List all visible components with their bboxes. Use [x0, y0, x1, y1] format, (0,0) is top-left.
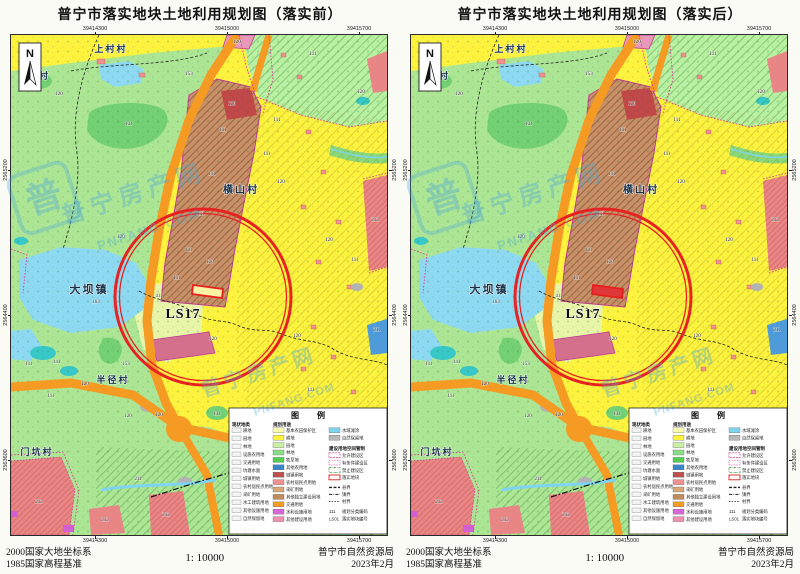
map-unit: 394143003941500039415700 394143003941500… — [400, 26, 800, 544]
legend-swatch-control — [329, 460, 340, 465]
agency-block: 普宁市自然资源局 2023年2月 — [718, 547, 794, 571]
landuse-code: 120 — [633, 40, 641, 45]
legend-label: 其他设施用地 — [243, 507, 269, 514]
legend-label: 耕地 — [643, 427, 652, 434]
landuse-code: 111 — [309, 52, 317, 57]
legend-swatch-planned — [673, 487, 684, 492]
grid-left-strip: 256520025644002563600 — [400, 35, 411, 535]
landuse-code: 211 — [134, 477, 142, 482]
legend-label: 其他建设用地 — [286, 516, 312, 523]
legend-swatch-current — [632, 444, 641, 449]
legend-label: 耕地 — [686, 434, 695, 441]
scale-label: 1: 10000 — [92, 547, 318, 571]
landuse-code: 120 — [628, 102, 636, 107]
landuse-code: 120 — [124, 414, 132, 419]
legend-label: 水利设施用地 — [286, 508, 312, 515]
legend-label: 设施农用地 — [243, 451, 265, 458]
place-label: 半径村 — [496, 374, 529, 385]
place-label: 横山村 — [623, 183, 659, 196]
hydraulic-patch — [63, 525, 74, 532]
legend-swatch-planned — [273, 480, 284, 485]
landuse-code: 212 — [162, 513, 170, 518]
landuse-code: 120 — [206, 260, 214, 265]
road-junction — [566, 416, 592, 442]
legend-label: 落实地块 — [342, 474, 360, 481]
grid-y-label: 2565200 — [392, 159, 398, 180]
map-canvas: 1111111111111111111111111111111111111111… — [11, 35, 387, 535]
legend-swatch-planned — [673, 465, 684, 470]
legend-label: 交通用地 — [686, 501, 704, 508]
legend-swatch-planned — [273, 457, 284, 462]
grid-y-label: 2564400 — [792, 304, 798, 325]
landuse-code: 111 — [585, 248, 593, 253]
legend-swatch-planned — [673, 509, 684, 514]
landuse-code: 153 — [185, 72, 193, 77]
legend-label: 禁止建设区 — [742, 467, 764, 474]
landuse-code: 131 — [525, 122, 533, 127]
landuse-code: 111 — [447, 394, 455, 399]
map-date: 2023年2月 — [718, 559, 794, 571]
landuse-code: 120 — [677, 180, 685, 185]
legend-code: LS01 — [329, 517, 340, 522]
grid-y-label: 2563600 — [792, 449, 798, 470]
landuse-code: 120 — [481, 382, 489, 387]
landuse-code: 111 — [351, 258, 359, 263]
landuse-code: 120 — [357, 90, 365, 95]
landuse-code: 111 — [25, 362, 33, 367]
landuse-code: 212 — [501, 518, 509, 523]
legend-swatch — [729, 435, 740, 440]
legend-swatch-current — [632, 516, 641, 521]
landuse-code: 120 — [228, 102, 236, 107]
legend-label: 其他设施用地 — [643, 507, 669, 514]
legend-swatch-current — [632, 508, 641, 513]
legend-swatch-planned — [673, 435, 684, 440]
legend-swatch-current — [232, 484, 241, 489]
legend-swatch-current — [632, 452, 641, 457]
legend-swatch-current — [232, 460, 241, 465]
legend-swatch-planned — [273, 517, 284, 522]
place-label: 门坑村 — [420, 446, 453, 457]
grid-top-strip: 394143003941500039415700 — [0, 26, 400, 35]
legend-label: 禁止建设区 — [342, 467, 364, 474]
place-label: 上村村 — [94, 43, 127, 54]
landuse-code: 111 — [608, 172, 616, 177]
legend-label: 水域滩涂 — [742, 427, 760, 434]
landuse-code: 111 — [709, 52, 717, 57]
landuse-code: 120 — [725, 238, 733, 243]
landuse-code: 111 — [263, 152, 271, 157]
legend-current-header: 现状地类 — [232, 421, 250, 428]
legend-label: 采矿用地 — [643, 491, 661, 498]
legend-swatch-planned — [673, 428, 684, 433]
legend-swatch-current — [232, 444, 241, 449]
legend-swatch-current — [232, 508, 241, 513]
legend-current-header: 现状地类 — [632, 421, 650, 428]
landuse-code: 120 — [693, 334, 701, 339]
landuse-code: 212 — [435, 500, 443, 505]
map-unit: 394143003941500039415700 394143003941500… — [0, 26, 400, 544]
legend-label: 落实地块编号 — [742, 516, 768, 523]
legend-title: 图 例 — [291, 410, 333, 420]
hydraulic-patch — [411, 511, 418, 517]
map-footer: 2000国家大地坐标系 1985国家高程基准 1: 10000 普宁市自然资源局… — [0, 544, 400, 571]
north-arrow: N — [419, 43, 441, 91]
landuse-code: 111 — [219, 128, 227, 133]
landuse-code: 120 — [609, 337, 617, 342]
legend-swatch-current — [632, 500, 641, 505]
nature-reserve-patch — [751, 283, 763, 291]
legend-swatch-planned — [273, 435, 284, 440]
legend-label: 允许建设区 — [742, 452, 764, 459]
map-footer: 2000国家大地坐标系 1985国家高程基准 1: 10000 普宁市自然资源局… — [400, 544, 800, 571]
legend-code: LS01 — [729, 517, 740, 522]
legend-label: 水利设施用地 — [686, 508, 712, 515]
legend-label: 村界 — [742, 498, 751, 505]
landuse-code: 120 — [117, 235, 125, 240]
legend-swatch-planned — [273, 428, 284, 433]
legend-swatch-planned — [673, 450, 684, 455]
legend-swatch-planned — [673, 517, 684, 522]
legend-label: 其他独立建设用地 — [286, 494, 321, 501]
legend-swatch-planned — [273, 450, 284, 455]
ls17-label: LS17 — [165, 307, 200, 322]
legend-label: 基本农田保护区 — [286, 427, 317, 434]
legend-label: 规划分类编码 — [342, 508, 368, 515]
landuse-code: 120 — [757, 90, 765, 95]
place-label: 门坑村 — [20, 446, 53, 457]
legend-swatch-current — [232, 492, 241, 497]
legend-label: 其他建设用地 — [686, 516, 712, 523]
legend-label: 林地 — [643, 443, 652, 450]
legend-swatch-control — [329, 453, 340, 458]
landuse-code: 153 — [585, 72, 593, 77]
legend-label: 耕地 — [243, 427, 252, 434]
legend-swatch-control — [729, 453, 740, 458]
legend-label: 耕地 — [286, 434, 295, 441]
legend-swatch-current — [632, 484, 641, 489]
legend-swatch-planned — [673, 457, 684, 462]
crs-block: 2000国家大地坐标系 1985国家高程基准 — [6, 547, 92, 571]
panel-before: 普宁市落实地块土地利用规划图（落实前） 39414300394150003941… — [0, 0, 400, 571]
legend-swatch-current — [632, 460, 641, 465]
road-junction — [166, 416, 192, 442]
landuse-code: 120 — [524, 414, 532, 419]
legend-swatch-planned — [673, 494, 684, 499]
landuse-code: 131 — [213, 412, 221, 417]
grid-y-label: 2564400 — [392, 304, 398, 325]
legend-label: 林地 — [686, 449, 695, 456]
place-label: 上村村 — [494, 43, 527, 54]
legend-label: 农村居民点用地 — [643, 483, 674, 490]
place-label: 大坝镇 — [470, 282, 509, 296]
north-label: N — [426, 48, 434, 60]
legend-swatch-current — [632, 476, 641, 481]
place-label: 横山村 — [223, 183, 259, 196]
legend-label: 坑塘水面 — [643, 467, 661, 474]
panel-after: 普宁市落实地块土地利用规划图（落实后） 39414300394150003941… — [400, 0, 800, 571]
legend-swatch-current — [232, 476, 241, 481]
legend-swatch-planned — [673, 480, 684, 485]
grid-right-strip: 256520025644002563600 — [789, 35, 800, 535]
legend-title: 图 例 — [691, 410, 733, 420]
landuse-code: 411 — [555, 294, 563, 299]
crs-line1: 2000国家大地坐标系 — [6, 547, 92, 559]
legend-label: 自然保留地 — [742, 434, 764, 441]
legend-label: 水域滩涂 — [342, 427, 360, 434]
grid-bottom-strip: 394143003941500039415700 — [0, 536, 400, 544]
grid-y-label: 2565200 — [792, 159, 798, 180]
landuse-code: 211 — [534, 477, 542, 482]
legend-label: 采矿用地 — [686, 486, 704, 493]
place-label: 半径村 — [96, 374, 129, 385]
map-title-before: 普宁市落实地块土地利用规划图（落实前） — [0, 0, 400, 26]
landuse-code: 120 — [455, 92, 463, 97]
landuse-code: 111 — [673, 118, 681, 123]
landuse-code: 111 — [307, 388, 315, 393]
map-date: 2023年2月 — [318, 559, 394, 571]
page: 普宁市落实地块土地利用规划图（落实前） 39414300394150003941… — [0, 0, 800, 571]
legend-swatch-planned — [273, 509, 284, 514]
legend-label: 水工建筑用地 — [643, 499, 669, 506]
grid-bottom-strip: 394143003941500039415700 — [400, 536, 800, 544]
agency-name: 普宁市自然资源局 — [318, 547, 394, 559]
landuse-code: 120 — [517, 235, 525, 240]
legend-label: 镇界 — [742, 491, 751, 498]
legend-swatch-current — [232, 500, 241, 505]
legend-label: 园地 — [243, 435, 252, 442]
landuse-code: 163 — [92, 300, 100, 305]
legend-code: 111 — [329, 509, 336, 514]
landuse-code: 212 — [35, 500, 43, 505]
landuse-code: 212 — [771, 218, 779, 223]
legend-label: 采矿用地 — [243, 491, 261, 498]
agency-block: 普宁市自然资源局 2023年2月 — [318, 547, 394, 571]
landuse-code: 212 — [371, 218, 379, 223]
legend-swatch-planned — [673, 443, 684, 448]
legend-swatch-planned — [273, 443, 284, 448]
crs-line2: 1985国家高程基准 — [406, 559, 492, 571]
landuse-code: 111 — [573, 276, 581, 281]
legend-label: 交通用地 — [643, 459, 661, 466]
legend-label: 城镇用地 — [686, 471, 704, 478]
grid-top-strip: 394143003941500039415700 — [400, 26, 800, 35]
legend-swatch-current — [232, 468, 241, 473]
landuse-code: 111 — [47, 394, 55, 399]
legend-label: 基本农田保护区 — [686, 427, 717, 434]
legend: 图 例 现状地类 规划用途 建设用地空间管制 耕地园地林地设施农用地交通用地坑塘… — [229, 408, 387, 534]
legend: 图 例 现状地类 规划用途 建设用地空间管制 耕地园地林地设施农用地交通用地坑塘… — [629, 408, 787, 534]
landuse-code: 120 — [155, 413, 163, 418]
legend-swatch-planned — [673, 502, 684, 507]
landuse-code: 131 — [613, 412, 621, 417]
landuse-code: 111 — [619, 128, 627, 133]
legend-swatch — [329, 435, 340, 440]
legend-label: 镇界 — [342, 491, 351, 498]
legend-swatch — [729, 428, 740, 433]
legend-label: 有条件建设区 — [342, 459, 368, 466]
landuse-code: 111 — [453, 360, 461, 365]
hydraulic-patch — [463, 525, 474, 532]
hydraulic-patch — [11, 511, 18, 517]
legend-label: 其他农用地 — [686, 464, 708, 471]
grid-y-label: 2563600 — [392, 449, 398, 470]
grid-right-strip: 256520025644002563600 — [389, 35, 400, 535]
legend-label: 其他独立建设用地 — [686, 494, 721, 501]
legend-swatch-planned — [273, 487, 284, 492]
legend-swatch-current — [232, 516, 241, 521]
legend-label: 有条件建设区 — [742, 459, 768, 466]
crs-line2: 1985国家高程基准 — [6, 559, 92, 571]
legend-label: 农村居民点用地 — [243, 483, 274, 490]
landuse-code: 111 — [597, 212, 605, 217]
legend-label: 园地 — [286, 442, 295, 449]
legend-control-header: 建设用地空间管制 — [328, 445, 365, 452]
legend-swatch-current — [632, 468, 641, 473]
landuse-code: 111 — [425, 362, 433, 367]
legend-swatch-control — [729, 475, 740, 480]
landuse-code: 120 — [555, 413, 563, 418]
legend-label: 村界 — [342, 498, 351, 505]
legend-swatch — [329, 428, 340, 433]
legend-label: 牧草地 — [686, 457, 700, 464]
north-label: N — [26, 48, 34, 60]
legend-label: 允许建设区 — [342, 452, 364, 459]
nature-reserve-patch — [351, 283, 363, 291]
landuse-code: 212 — [562, 513, 570, 518]
landuse-code: 111 — [663, 152, 671, 157]
landuse-code: 111 — [185, 248, 193, 253]
legend-label: 坑塘水面 — [243, 467, 261, 474]
legend-label: 其他农用地 — [286, 464, 308, 471]
map-unit-slot: 394143003941500039415700 394143003941500… — [400, 26, 800, 544]
legend-swatch-current — [632, 428, 641, 433]
legend-swatch-control — [329, 475, 340, 480]
landuse-code: 131 — [125, 122, 133, 127]
legend-label: 城镇用地 — [643, 475, 661, 482]
legend-label: 林地 — [243, 443, 252, 450]
ls17-label: LS17 — [565, 307, 600, 322]
legend-label: 落实地块编号 — [342, 516, 368, 523]
landuse-code: 153 — [122, 362, 130, 367]
landuse-code: 211 — [773, 328, 781, 333]
legend-swatch-current — [232, 436, 241, 441]
landuse-code: 120 — [55, 92, 63, 97]
landuse-code: 111 — [53, 360, 61, 365]
legend-control-header: 建设用地空间管制 — [728, 445, 765, 452]
legend-label: 自然保留地 — [342, 434, 364, 441]
legend-code: 111 — [729, 509, 736, 514]
landuse-code: 111 — [197, 212, 205, 217]
legend-label: 城镇用地 — [243, 475, 261, 482]
landuse-code: 111 — [707, 388, 715, 393]
legend-swatch-current — [632, 436, 641, 441]
legend-label: 农村居民点用地 — [286, 479, 317, 486]
legend-planned-header: 规划用途 — [273, 421, 291, 428]
legend-label: 林地 — [286, 449, 295, 456]
landuse-code: 111 — [208, 172, 216, 177]
landuse-code: 111 — [273, 118, 281, 123]
landuse-code: 120 — [233, 40, 241, 45]
legend-label: 交通用地 — [243, 459, 261, 466]
legend-swatch-control — [729, 468, 740, 473]
landuse-code: 120 — [81, 382, 89, 387]
legend-label: 设施农用地 — [643, 451, 665, 458]
legend-swatch-planned — [273, 502, 284, 507]
landuse-code: 120 — [606, 260, 614, 265]
legend-planned-header: 规划用途 — [673, 421, 691, 428]
landuse-code: 411 — [155, 294, 163, 299]
legend-label: 农村居民点用地 — [686, 479, 717, 486]
legend-label: 落实地块 — [742, 474, 760, 481]
landuse-code: 212 — [101, 518, 109, 523]
grid-left-strip: 256520025644002563600 — [0, 35, 11, 535]
legend-swatch-current — [232, 452, 241, 457]
landuse-code: 120 — [277, 180, 285, 185]
legend-label: 牧草地 — [286, 457, 300, 464]
legend-label: 自然保留地 — [643, 515, 665, 522]
landuse-code: 153 — [522, 362, 530, 367]
legend-label: 园地 — [686, 442, 695, 449]
legend-swatch-current — [232, 428, 241, 433]
landuse-code: 120 — [325, 238, 333, 243]
scale-label: 1: 10000 — [492, 547, 718, 571]
legend-label: 城镇用地 — [286, 471, 304, 478]
crs-line1: 2000国家大地坐标系 — [406, 547, 492, 559]
place-label: 大坝镇 — [70, 282, 109, 296]
landuse-code: 163 — [492, 300, 500, 305]
landuse-code: 120 — [209, 337, 217, 342]
legend-swatch-current — [632, 492, 641, 497]
legend-swatch-control — [329, 468, 340, 473]
legend-label: 园地 — [643, 435, 652, 442]
legend-swatch-planned — [273, 494, 284, 499]
landuse-code: 211 — [373, 328, 381, 333]
crs-block: 2000国家大地坐标系 1985国家高程基准 — [406, 547, 492, 571]
landuse-code: 111 — [751, 258, 759, 263]
north-arrow: N — [19, 43, 41, 91]
legend-swatch-planned — [273, 472, 284, 477]
landuse-code: 120 — [293, 334, 301, 339]
legend-label: 水工建筑用地 — [243, 499, 269, 506]
map-canvas: 1111111111111111111111111111111111111111… — [411, 35, 787, 535]
legend-label: 采矿用地 — [286, 486, 304, 493]
agency-name: 普宁市自然资源局 — [718, 547, 794, 559]
legend-label: 交通用地 — [286, 501, 304, 508]
legend-swatch-control — [729, 460, 740, 465]
legend-label: 规划分类编码 — [742, 508, 768, 515]
map-title-after: 普宁市落实地块土地利用规划图（落实后） — [400, 0, 800, 26]
legend-swatch-planned — [273, 465, 284, 470]
landuse-code: 111 — [173, 276, 181, 281]
legend-label: 自然保留地 — [243, 515, 265, 522]
legend-swatch-planned — [673, 472, 684, 477]
